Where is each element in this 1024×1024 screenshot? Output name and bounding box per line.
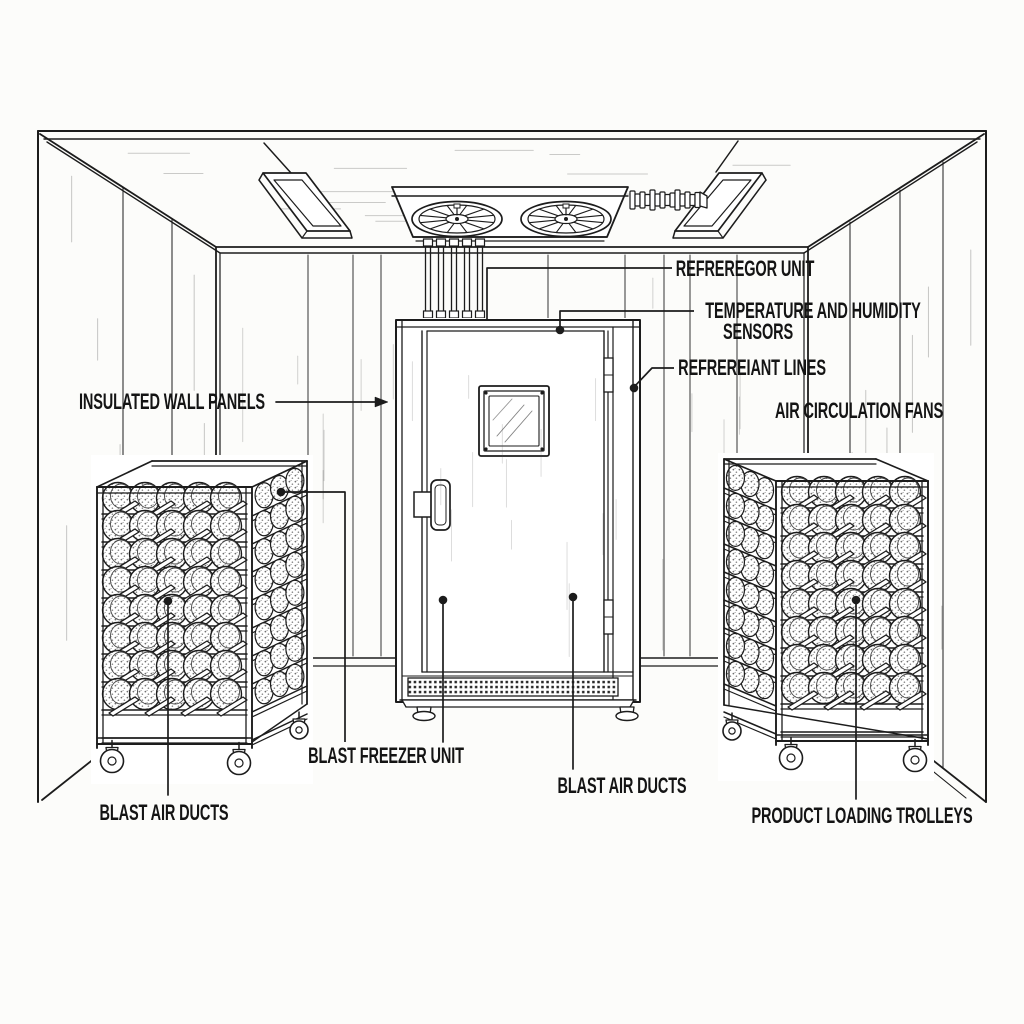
label-blast-freezer-unit: BLAST FREEZER UNIT	[308, 743, 464, 769]
label-blast-air-ducts-left: BLAST AIR DUCTS	[100, 800, 229, 826]
label-air-circulation-fans: AIR CIRCULATION FANS	[775, 398, 943, 424]
label-temperature-humidity-2: SENSORS	[723, 319, 793, 345]
blast-freezer-room-diagram: REFREREGOR UNIT TEMPERATURE AND HUMIDITY…	[0, 0, 1024, 1024]
label-refrigerant-lines: REFREREIANT LINES	[678, 355, 826, 381]
label-refrigerator-unit: REFREREGOR UNIT	[676, 256, 814, 282]
label-blast-air-ducts-center: BLAST AIR DUCTS	[558, 773, 687, 799]
line-art-illustration	[0, 0, 1024, 1024]
label-insulated-wall-panels: INSULATED WALL PANELS	[79, 389, 265, 415]
label-product-loading-trolleys: PRODUCT LOADING TROLLEYS	[751, 803, 972, 829]
